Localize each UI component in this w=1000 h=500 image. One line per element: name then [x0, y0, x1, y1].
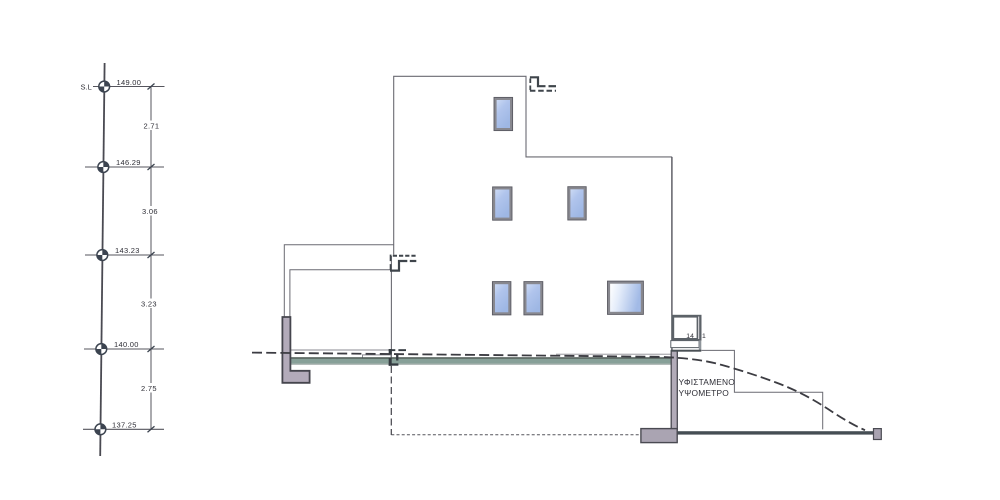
- svg-text:143.23: 143.23: [115, 246, 140, 255]
- svg-text:2.71: 2.71: [144, 122, 160, 131]
- svg-text:S.L: S.L: [81, 83, 92, 92]
- svg-text:14: 14: [686, 333, 694, 340]
- svg-text:137.25: 137.25: [112, 420, 137, 429]
- svg-text:149.00: 149.00: [117, 78, 142, 87]
- svg-text:3.23: 3.23: [141, 300, 157, 309]
- svg-text:146.29: 146.29: [116, 158, 141, 167]
- svg-text:1: 1: [702, 333, 706, 340]
- svg-text:2.75: 2.75: [141, 384, 157, 393]
- svg-text:140.00: 140.00: [114, 340, 139, 349]
- svg-text:ΥΨΟΜΕΤΡΟ: ΥΨΟΜΕΤΡΟ: [679, 388, 730, 398]
- svg-text:ΥΦΙΣΤΑΜΕΝΟ: ΥΦΙΣΤΑΜΕΝΟ: [679, 377, 736, 387]
- svg-text:3.06: 3.06: [142, 207, 158, 216]
